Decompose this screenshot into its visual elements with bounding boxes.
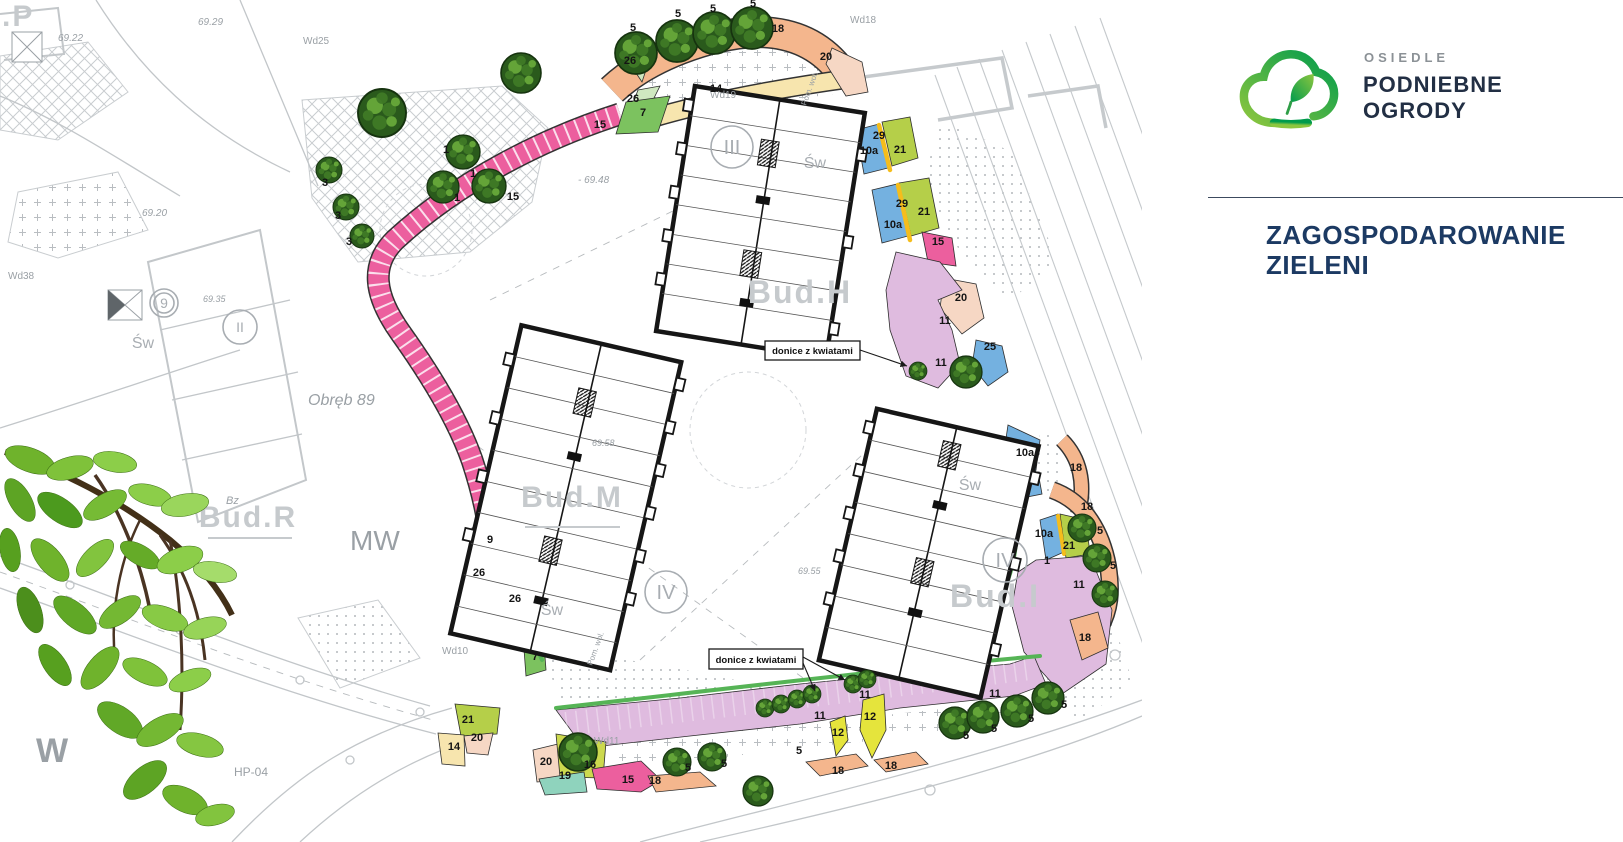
survey-label: Wd38 [8, 271, 35, 282]
survey-label: Wd18 [850, 15, 877, 26]
zone-label-7: 7 [532, 651, 538, 663]
zone-label-21: 21 [462, 714, 474, 726]
svg-text:9: 9 [160, 295, 168, 311]
tree-symbol [950, 356, 982, 388]
zone-label-11: 11 [859, 689, 871, 701]
zone-label-15: 15 [622, 774, 634, 786]
tree-symbol [1032, 682, 1064, 714]
zone-label-5: 5 [963, 730, 969, 742]
building-label-bud-p: Bud.P [0, 0, 34, 33]
zone-label-18: 18 [885, 760, 897, 772]
zone-label-10a: 10a [860, 145, 879, 157]
zone-label-1: 1 [454, 192, 460, 204]
zone-label-5: 5 [721, 758, 727, 770]
tree-symbol [731, 7, 773, 49]
estate-label: OSIEDLE [1364, 50, 1449, 65]
survey-label: 69.22 [58, 33, 83, 44]
zone-label-5: 5 [1110, 560, 1116, 572]
site-plan-area: 69.2269.2969.20- 69.4869.3569.5869.55Wd2… [0, 0, 1142, 842]
cloud-leaf-logo-icon [1230, 42, 1348, 136]
zone-label-9: 9 [487, 534, 493, 546]
sw-label: Św [804, 153, 827, 172]
tree-symbol [743, 776, 773, 806]
svg-text:III: III [724, 137, 741, 159]
survey-label: 69.20 [142, 208, 167, 219]
tree-symbol [858, 670, 876, 688]
brand-name-line2: OGRODY [1363, 98, 1467, 124]
circled-label-II: II [223, 310, 257, 344]
zone-label-5: 5 [685, 762, 691, 774]
tree-symbol [1068, 514, 1096, 542]
tree-symbol [656, 20, 698, 62]
survey-label: - 69.48 [578, 175, 610, 186]
zone-label-15: 15 [507, 191, 519, 203]
zone-label-18: 18 [832, 765, 844, 777]
zone-label-18: 18 [772, 23, 784, 35]
brand-panel: OSIEDLE PODNIEBNE OGRODY ZAGOSPODAROWANI… [1142, 0, 1623, 842]
zone-label-5: 5 [1061, 699, 1067, 711]
site-plan: 69.2269.2969.20- 69.4869.3569.5869.55Wd2… [0, 0, 1142, 842]
tree-symbol [803, 685, 821, 703]
zone-label-5: 5 [675, 8, 681, 20]
zone-label-11: 11 [1073, 579, 1085, 591]
survey-label: 69.35 [203, 294, 227, 304]
zone-label-15: 15 [932, 236, 944, 248]
zone-label-18: 18 [1079, 632, 1091, 644]
zone-label-20: 20 [820, 51, 832, 63]
zone-label-3: 3 [322, 177, 328, 189]
svg-text:II: II [236, 319, 244, 335]
tree-symbol [615, 32, 657, 74]
tree-symbol [350, 224, 374, 248]
building-label-bud-r: Bud.R [199, 501, 297, 534]
divider-line [1208, 197, 1623, 198]
zone-label-19: 19 [559, 770, 571, 782]
tree-symbol [909, 362, 927, 380]
survey-label: MW [350, 525, 400, 556]
zone-label-15: 15 [594, 119, 606, 131]
sw-label: Św [959, 475, 982, 494]
circled-label-IV: IV [645, 571, 687, 613]
tree-symbol [756, 699, 774, 717]
plan-title-line2: ZIELENI [1266, 250, 1369, 281]
zone-label-26: 26 [509, 593, 521, 605]
survey-label: Wd25 [303, 36, 330, 47]
tree-symbol [693, 12, 735, 54]
zone-label-1: 1 [443, 144, 449, 156]
tree-symbol [501, 53, 541, 93]
zone-label-20: 20 [955, 292, 967, 304]
building-h [648, 85, 872, 359]
survey-label: 69.29 [198, 17, 223, 28]
zone-label-12: 12 [864, 711, 876, 723]
tree-symbol [1092, 581, 1118, 607]
zone-label-18: 18 [649, 775, 661, 787]
building-label-bud-m: Bud.M [521, 481, 623, 514]
zone-label-5: 5 [1097, 525, 1103, 537]
tree-symbol [472, 169, 506, 203]
survey-label: 69.58 [592, 438, 615, 448]
zone-label-5: 5 [991, 723, 997, 735]
zone-label-21: 21 [894, 144, 906, 156]
leaf-photo-overlay [0, 440, 238, 830]
plan-title-line1: ZAGOSPODAROWANIE [1266, 220, 1566, 251]
zone-label-1: 1 [1044, 555, 1050, 567]
zone-label-16: 16 [584, 759, 596, 771]
zone-label-20: 20 [540, 756, 552, 768]
zone-label-18: 18 [1081, 501, 1093, 513]
zone-label-14: 14 [448, 741, 461, 753]
zone-label-20: 20 [471, 732, 483, 744]
zone-label-21: 21 [1063, 540, 1075, 552]
survey-square-symbol [108, 290, 142, 320]
zone-label-11: 11 [939, 315, 951, 327]
zone-label-7: 7 [640, 107, 646, 119]
zone-label-26: 26 [627, 93, 639, 105]
callout-text: donice z kwiatami [772, 346, 853, 357]
zone-label-3: 3 [346, 236, 352, 248]
tree-symbol [772, 695, 790, 713]
tree-symbol [446, 135, 480, 169]
zone-label-12: 12 [832, 727, 844, 739]
building-label-bud-h: Bud.H [748, 274, 852, 310]
svg-text:IV: IV [657, 582, 677, 604]
zone-label-10a: 10a [1035, 528, 1054, 540]
zone-label-25: 25 [984, 341, 996, 353]
zone-label-14: 14 [710, 83, 723, 95]
tree-symbol [316, 157, 342, 183]
zone-label-3: 3 [335, 210, 341, 222]
survey-label: W [36, 732, 69, 770]
zone-label-11: 11 [935, 357, 947, 369]
survey-label: 69.55 [798, 566, 822, 576]
zone-label-29: 29 [873, 130, 885, 142]
zone-label-26: 26 [473, 567, 485, 579]
zone-label-21: 21 [918, 206, 930, 218]
circled-label-9: 9 [150, 289, 178, 317]
leaf-icon [1291, 74, 1314, 102]
zone-label-5: 5 [710, 3, 716, 15]
zone-label-18: 18 [1070, 462, 1082, 474]
building-label-bud-i: Bud.I [950, 578, 1040, 614]
zone-label-10a: 10a [1016, 447, 1035, 459]
brand-name-line1: PODNIEBNE [1363, 72, 1503, 98]
zone-label-11: 11 [814, 710, 826, 722]
tree-symbol [358, 89, 406, 137]
zone-label-5: 5 [750, 0, 756, 10]
zone-label-5: 5 [630, 22, 636, 34]
zone-label-26: 26 [624, 55, 636, 67]
survey-label: Wd10 [442, 646, 469, 657]
zone-label-29: 29 [896, 198, 908, 210]
zone-label-1: 1 [470, 168, 476, 180]
survey-label: Wd11 [594, 736, 620, 747]
zone-label-5: 5 [796, 745, 802, 757]
callout-text: donice z kwiatami [716, 655, 797, 666]
sw-label: Św [541, 600, 564, 619]
tree-symbol [1083, 544, 1111, 572]
building-r-outline [108, 230, 306, 522]
zone-label-10a: 10a [884, 219, 903, 231]
zone-label-5: 5 [1028, 713, 1034, 725]
zone-label-11: 11 [989, 688, 1001, 700]
survey-label: HP-04 [234, 765, 268, 779]
svg-text:IV: IV [996, 550, 1016, 572]
page: 69.2269.2969.20- 69.4869.3569.5869.55Wd2… [0, 0, 1623, 842]
survey-label: Obręb 89 [308, 392, 375, 409]
sw-label: Św [132, 333, 155, 352]
